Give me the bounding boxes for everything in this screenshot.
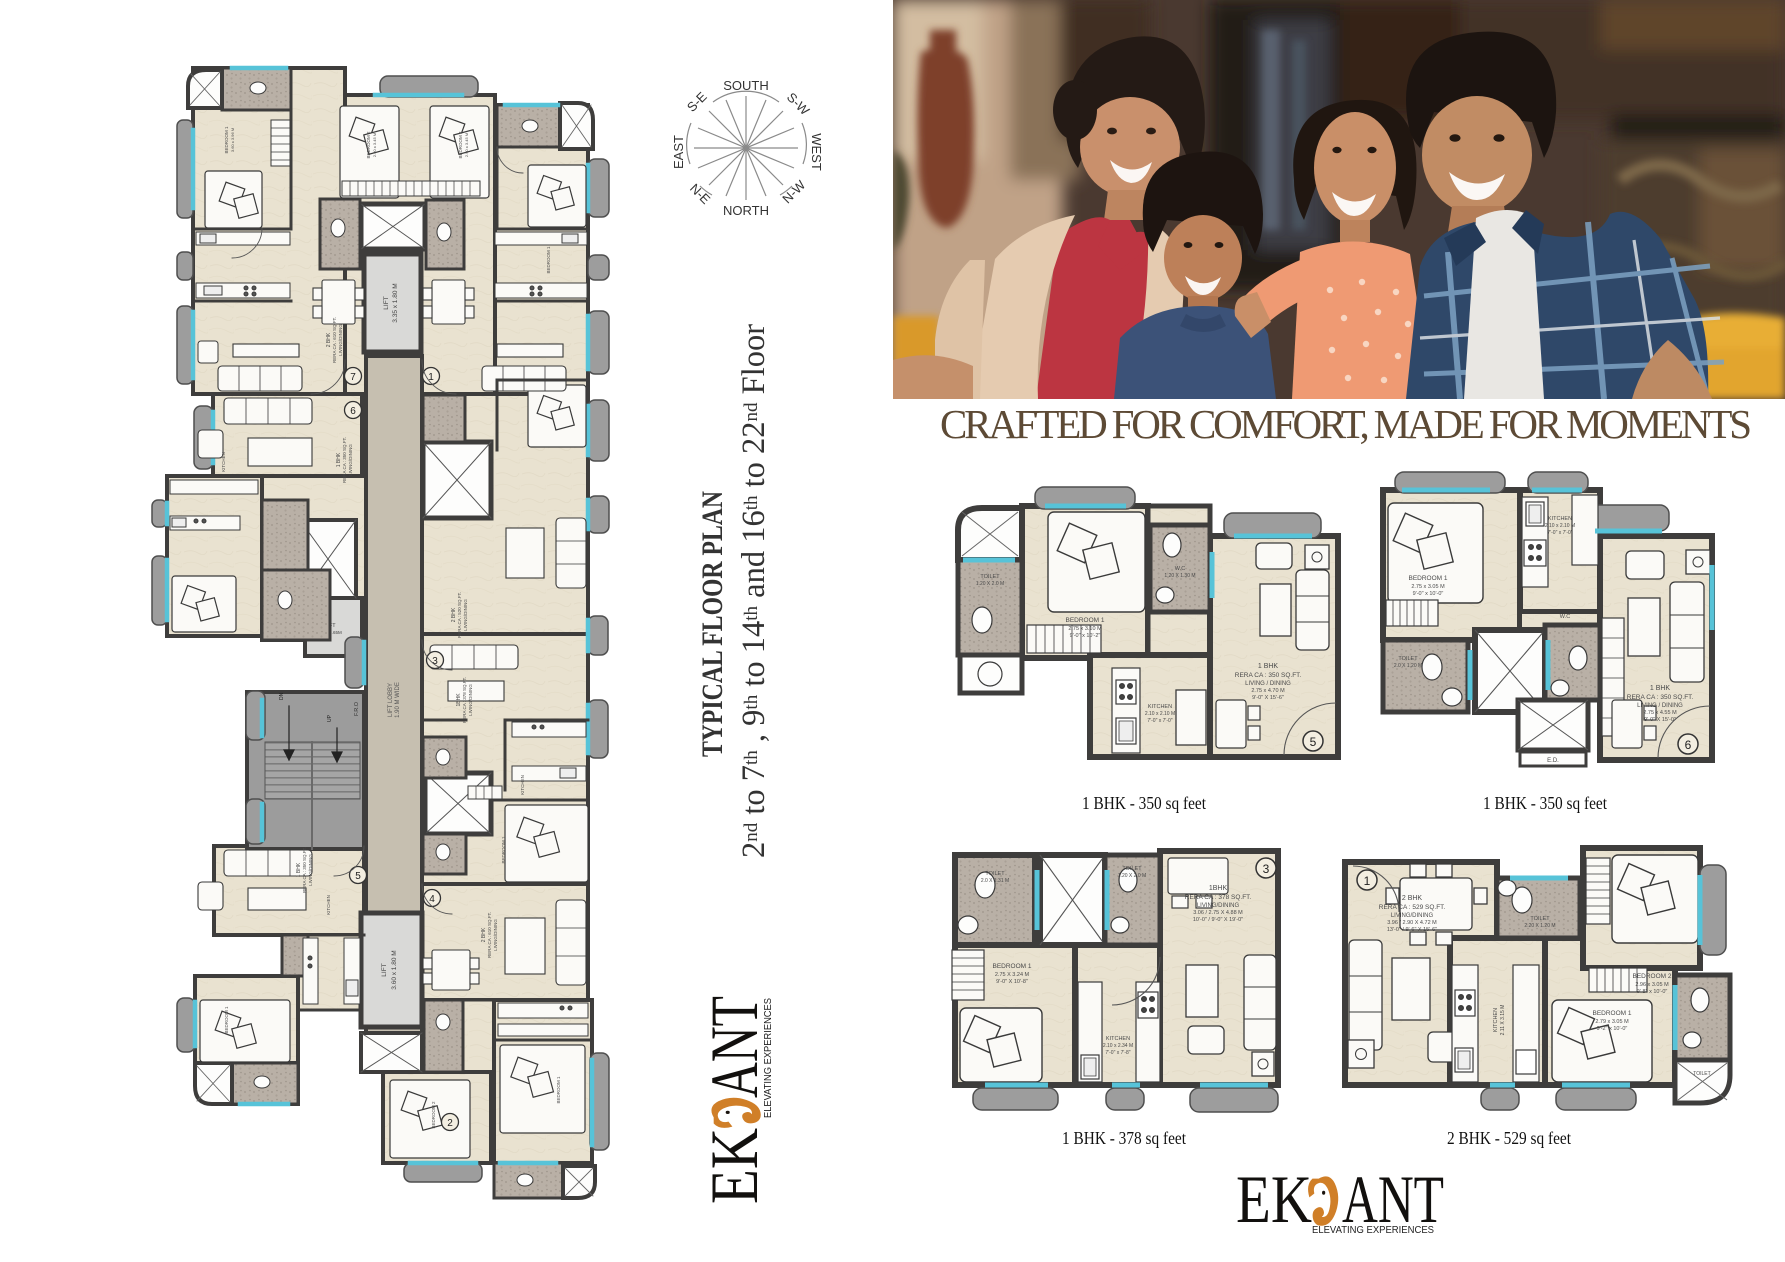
svg-text:1 BHK: 1 BHK: [1650, 685, 1671, 692]
svg-text:2.90 x 3.45 M: 2.90 x 3.45 M: [372, 133, 377, 157]
svg-text:LIVING / DINING: LIVING / DINING: [1637, 703, 1683, 709]
svg-text:3.96 / 2.90 X 4.72 M: 3.96 / 2.90 X 4.72 M: [1387, 920, 1437, 926]
svg-text:2.75 x 3.05 M: 2.75 x 3.05 M: [1411, 584, 1445, 590]
svg-text:2nd to 7th , 9th to 14th and 1: 2nd to 7th , 9th to 14th and 16th to 22n…: [736, 324, 772, 858]
svg-text:ELEVATING EXPERIENCES: ELEVATING EXPERIENCES: [762, 998, 774, 1118]
svg-text:6: 6: [1685, 738, 1692, 752]
svg-text:3.60 x 1.80 M: 3.60 x 1.80 M: [391, 950, 398, 989]
svg-text:RERA CA : 520 SQ.FT.: RERA CA : 520 SQ.FT.: [457, 592, 462, 638]
svg-text:RERA CA : 350 SQ.FT.: RERA CA : 350 SQ.FT.: [1627, 694, 1694, 701]
svg-text:RERA CA : 350 SQ.FT.: RERA CA : 350 SQ.FT.: [1235, 672, 1302, 679]
svg-text:1 BHK - 350 sq feet: 1 BHK - 350 sq feet: [1483, 793, 1607, 813]
svg-text:2.10 x 2.34 M: 2.10 x 2.34 M: [1103, 1043, 1133, 1049]
svg-text:TYPICAL FLOOR PLAN: TYPICAL FLOOR PLAN: [696, 491, 729, 757]
svg-text:LIVING/DINING: LIVING/DINING: [1197, 903, 1240, 909]
svg-text:2 BHK: 2 BHK: [1402, 895, 1423, 902]
svg-text:RERA CA : 378 SQ.FT.: RERA CA : 378 SQ.FT.: [462, 677, 467, 723]
svg-text:1.90 M WIDE: 1.90 M WIDE: [395, 682, 401, 718]
svg-text:RERA CA : 610 SQ.FT.: RERA CA : 610 SQ.FT.: [487, 912, 492, 958]
svg-text:BEDROOM 1: BEDROOM 1: [224, 126, 229, 154]
svg-text:3.06 / 2.75 X 4.88 M: 3.06 / 2.75 X 4.88 M: [1193, 910, 1243, 916]
svg-text:9'-8" x 10'-0": 9'-8" x 10'-0": [1637, 989, 1668, 995]
svg-text:UP: UP: [327, 714, 333, 722]
svg-text:S-E: S-E: [684, 89, 710, 115]
svg-text:BEDROOM 2: BEDROOM 2: [458, 131, 463, 159]
svg-text:TOILET: TOILET: [1398, 656, 1418, 662]
svg-text:LIFT LOBBY: LIFT LOBBY: [388, 683, 394, 717]
svg-text:LIVING/DINING: LIVING/DINING: [348, 444, 353, 476]
svg-text:7: 7: [350, 372, 356, 383]
svg-text:9'-0" X 10'-8": 9'-0" X 10'-8": [996, 979, 1028, 985]
svg-text:9'-0" X 15'-6": 9'-0" X 15'-6": [1252, 695, 1284, 701]
svg-text:KITCHEN: KITCHEN: [221, 452, 226, 472]
svg-text:BEDROOM 1: BEDROOM 1: [1592, 1010, 1631, 1017]
svg-text:KITCHEN: KITCHEN: [1148, 704, 1172, 710]
svg-text:KITCHEN: KITCHEN: [1106, 1036, 1130, 1042]
svg-text:LIVING/DINING: LIVING/DINING: [463, 599, 468, 631]
svg-text:BEDROOM 1: BEDROOM 1: [224, 1006, 229, 1034]
svg-text:BEDROOM 2: BEDROOM 2: [366, 131, 371, 159]
svg-text:LIFT: LIFT: [383, 296, 390, 309]
svg-text:9'-0" x 10'-0": 9'-0" x 10'-0": [1413, 591, 1444, 597]
svg-text:ELEVATING EXPERIENCES: ELEVATING EXPERIENCES: [1312, 1224, 1434, 1236]
svg-text:RERA CA : 529 SQ.FT.: RERA CA : 529 SQ.FT.: [1379, 904, 1446, 911]
svg-text:LIVING/DINING: LIVING/DINING: [308, 854, 313, 886]
svg-text:TOILET: TOILET: [1693, 1071, 1710, 1077]
svg-text:DN: DN: [279, 692, 285, 700]
svg-text:KITCHEN: KITCHEN: [1493, 1008, 1499, 1032]
svg-text:BEDROOM 2: BEDROOM 2: [431, 1101, 436, 1129]
svg-text:BEDROOM 1: BEDROOM 1: [556, 1076, 561, 1104]
svg-text:BEDROOM 2: BEDROOM 2: [1632, 973, 1671, 980]
svg-text:2 BHK - 529 sq feet: 2 BHK - 529 sq feet: [1447, 1128, 1571, 1148]
svg-text:RERA CA : 378 SQ.FT.: RERA CA : 378 SQ.FT.: [1185, 894, 1252, 901]
svg-text:W.C: W.C: [1560, 614, 1570, 620]
svg-text:13'-0" / 9'-6" X 15'-6": 13'-0" / 9'-6" X 15'-6": [1387, 927, 1437, 933]
svg-text:3.35 x 1.80 M: 3.35 x 1.80 M: [392, 283, 399, 322]
svg-text:9'-0" x 10'-2": 9'-0" x 10'-2": [1070, 633, 1101, 639]
svg-text:1: 1: [1364, 874, 1371, 888]
svg-text:N-W: N-W: [779, 177, 808, 206]
svg-text:BEDROOM 1: BEDROOM 1: [501, 836, 506, 864]
svg-text:E.D.: E.D.: [1547, 758, 1559, 764]
svg-text:LIVING/DINING: LIVING/DINING: [493, 919, 498, 951]
svg-text:2: 2: [447, 1118, 453, 1129]
svg-text:6: 6: [350, 406, 356, 417]
svg-text:1 BHK: 1 BHK: [1258, 663, 1279, 670]
svg-text:10'-0" / 9'-0" X 19'-0": 10'-0" / 9'-0" X 19'-0": [1193, 917, 1243, 923]
svg-text:4: 4: [429, 894, 435, 905]
svg-text:TOILET: TOILET: [985, 871, 1005, 877]
svg-text:2.96 x 3.05 M: 2.96 x 3.05 M: [1635, 982, 1669, 988]
svg-text:KITCHEN: KITCHEN: [1548, 516, 1572, 522]
svg-text:2.75 X 3.24 M: 2.75 X 3.24 M: [995, 972, 1030, 978]
svg-text:3: 3: [1263, 862, 1270, 876]
svg-text:NORTH: NORTH: [723, 203, 769, 218]
svg-text:EK: EK: [1236, 1161, 1312, 1237]
svg-text:2.0 X 1.31 M: 2.0 X 1.31 M: [981, 878, 1009, 884]
svg-text:3.60 x 3.96 M: 3.60 x 3.96 M: [230, 128, 235, 152]
svg-text:LIVING/DINING: LIVING/DINING: [338, 324, 343, 356]
svg-text:EAST: EAST: [671, 135, 686, 169]
svg-text:TOILET: TOILET: [980, 574, 1000, 580]
svg-text:1.20 X 1.30 M: 1.20 X 1.30 M: [1164, 573, 1195, 579]
svg-text:KITCHEN: KITCHEN: [326, 895, 331, 915]
svg-text:BEDROOM 1: BEDROOM 1: [1065, 617, 1104, 624]
svg-text:BEDROOM 1: BEDROOM 1: [546, 246, 551, 274]
svg-text:2.75 x 3.10 M: 2.75 x 3.10 M: [1068, 626, 1102, 632]
svg-text:7'-0" x 7'-0": 7'-0" x 7'-0": [1147, 718, 1172, 724]
svg-text:TOILET: TOILET: [1530, 916, 1550, 922]
svg-text:F.R.O: F.R.O: [354, 701, 360, 716]
svg-text:2.11 X 3.15 M: 2.11 X 3.15 M: [1500, 1005, 1506, 1036]
svg-text:RERA CA : 350 SQ.FT.: RERA CA : 350 SQ.FT.: [342, 437, 347, 483]
svg-text:9'-0" X 15'-0": 9'-0" X 15'-0": [1644, 717, 1676, 723]
svg-text:2.75 x 4.55 M: 2.75 x 4.55 M: [1643, 710, 1677, 716]
svg-text:BEDROOM 1: BEDROOM 1: [992, 963, 1031, 970]
svg-text:LIFT: LIFT: [381, 963, 388, 976]
svg-text:TOILET: TOILET: [1122, 866, 1142, 872]
svg-text:1BHK: 1BHK: [1209, 885, 1228, 892]
svg-text:1 BHK - 378 sq feet: 1 BHK - 378 sq feet: [1062, 1128, 1186, 1148]
svg-text:LIVING / DINING: LIVING / DINING: [1245, 681, 1291, 687]
svg-text:RERA CA : 610 SQ.FT.: RERA CA : 610 SQ.FT.: [332, 317, 337, 363]
svg-text:2.79 x 3.05 M: 2.79 x 3.05 M: [1595, 1019, 1629, 1025]
svg-text:1 BHK - 350 sq feet: 1 BHK - 350 sq feet: [1082, 793, 1206, 813]
svg-text:KITCHEN: KITCHEN: [520, 775, 525, 795]
svg-text:W.C: W.C: [1175, 566, 1185, 572]
svg-text:CRAFTED FOR COMFORT, MADE FOR: CRAFTED FOR COMFORT, MADE FOR MOMENTS: [940, 401, 1752, 447]
svg-text:RERA CA : 350 SQ.FT.: RERA CA : 350 SQ.FT.: [302, 847, 307, 893]
svg-text:2.90 x 3.45 M: 2.90 x 3.45 M: [464, 133, 469, 157]
svg-text:EK: EK: [696, 1128, 772, 1204]
svg-text:7'-0" x 7'-8": 7'-0" x 7'-8": [1105, 1050, 1130, 1056]
svg-text:5: 5: [355, 871, 361, 882]
svg-text:LIVING/DINING: LIVING/DINING: [1391, 913, 1434, 919]
svg-text:2.10 x 2.10 M: 2.10 x 2.10 M: [1545, 523, 1575, 529]
svg-text:SOUTH: SOUTH: [723, 78, 769, 93]
svg-text:1.20 X 2.0 M: 1.20 X 2.0 M: [1118, 873, 1146, 879]
svg-text:WEST: WEST: [809, 133, 824, 171]
svg-text:9'-2" x 10'-0": 9'-2" x 10'-0": [1597, 1026, 1628, 1032]
svg-text:ANT: ANT: [696, 996, 772, 1098]
svg-text:5: 5: [1310, 735, 1317, 749]
svg-text:BEDROOM 1: BEDROOM 1: [1408, 575, 1447, 582]
svg-text:7'-0" x 7'-0": 7'-0" x 7'-0": [1547, 530, 1572, 536]
svg-text:LIVING/DINING: LIVING/DINING: [468, 684, 473, 716]
svg-text:2.10 x 2.10 M: 2.10 x 2.10 M: [1145, 711, 1175, 717]
svg-text:1.20 X 2.0 M: 1.20 X 2.0 M: [976, 581, 1004, 587]
svg-text:2.20 X 1.20 M: 2.20 X 1.20 M: [1524, 923, 1555, 929]
svg-text:2.75 x 4.70 M: 2.75 x 4.70 M: [1251, 688, 1285, 694]
svg-text:2.0 X 1.20 M: 2.0 X 1.20 M: [1394, 663, 1422, 669]
svg-text:S-W: S-W: [784, 90, 813, 119]
